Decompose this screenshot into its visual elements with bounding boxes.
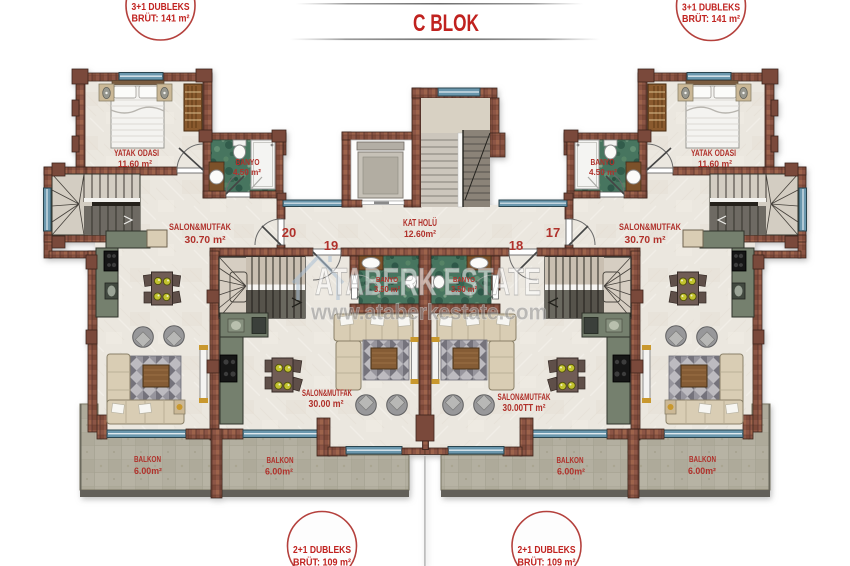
svg-text:30.70 m²: 30.70 m²	[185, 235, 227, 246]
svg-text:6.00m²: 6.00m²	[134, 466, 162, 476]
svg-text:SALON&MUTFAK: SALON&MUTFAK	[498, 392, 551, 403]
svg-text:6.00m²: 6.00m²	[688, 466, 716, 476]
svg-text:30.70 m²: 30.70 m²	[625, 235, 667, 246]
svg-text:11.60 m²: 11.60 m²	[118, 159, 152, 170]
svg-text:SALON&MUTFAK: SALON&MUTFAK	[302, 388, 352, 399]
svg-text:30.00TT m²: 30.00TT m²	[503, 403, 547, 414]
svg-text:YATAK ODASI: YATAK ODASI	[691, 148, 736, 158]
svg-text:BANYO: BANYO	[591, 158, 615, 167]
svg-text:BALKON: BALKON	[134, 454, 161, 464]
svg-text:C BLOK: C BLOK	[413, 10, 479, 37]
svg-text:BRÜT: 109 m²: BRÜT: 109 m²	[293, 556, 351, 566]
svg-text:BALKON: BALKON	[689, 454, 716, 464]
svg-text:3.50 m²: 3.50 m²	[374, 285, 400, 294]
svg-text:3.50 m²: 3.50 m²	[451, 285, 477, 294]
svg-text:4.50 m²: 4.50 m²	[589, 167, 617, 177]
svg-text:18: 18	[509, 238, 523, 253]
svg-text:BRÜT: 109 m²: BRÜT: 109 m²	[518, 556, 576, 566]
svg-text:6.00m²: 6.00m²	[557, 467, 585, 477]
svg-text:4.50 m²: 4.50 m²	[233, 167, 261, 177]
svg-text:2+1 DUBLEKS: 2+1 DUBLEKS	[518, 544, 576, 556]
svg-text:YATAK ODASI: YATAK ODASI	[114, 148, 159, 158]
svg-text:6.00m²: 6.00m²	[265, 467, 293, 477]
svg-text:12.60m²: 12.60m²	[404, 229, 436, 240]
svg-text:BRÜT: 141 m²: BRÜT: 141 m²	[682, 12, 740, 25]
svg-text:19: 19	[324, 238, 338, 253]
svg-text:17: 17	[546, 225, 560, 240]
svg-text:3+1 DUBLEKS: 3+1 DUBLEKS	[682, 2, 740, 14]
svg-text:www.ataberkestate.com: www.ataberkestate.com	[310, 300, 547, 325]
svg-text:BALKON: BALKON	[557, 455, 584, 465]
svg-text:BANYO: BANYO	[453, 275, 475, 284]
svg-text:SALON&MUTFAK: SALON&MUTFAK	[619, 222, 681, 233]
svg-text:KAT HOLÜ: KAT HOLÜ	[403, 216, 437, 229]
svg-text:BANYO: BANYO	[236, 158, 260, 167]
svg-text:3+1 DUBLEKS: 3+1 DUBLEKS	[132, 1, 190, 13]
svg-text:ATABERK ESTATE: ATABERK ESTATE	[315, 261, 541, 304]
svg-text:SALON&MUTFAK: SALON&MUTFAK	[169, 222, 231, 233]
svg-text:2+1 DUBLEKS: 2+1 DUBLEKS	[293, 544, 351, 556]
svg-text:11.60 m²: 11.60 m²	[698, 159, 732, 170]
svg-text:30.00 m²: 30.00 m²	[309, 399, 345, 410]
svg-text:BALKON: BALKON	[267, 455, 294, 465]
svg-text:BANYO: BANYO	[376, 275, 398, 284]
svg-text:BRÜT: 141 m²: BRÜT: 141 m²	[132, 12, 190, 25]
svg-text:20: 20	[282, 225, 296, 240]
